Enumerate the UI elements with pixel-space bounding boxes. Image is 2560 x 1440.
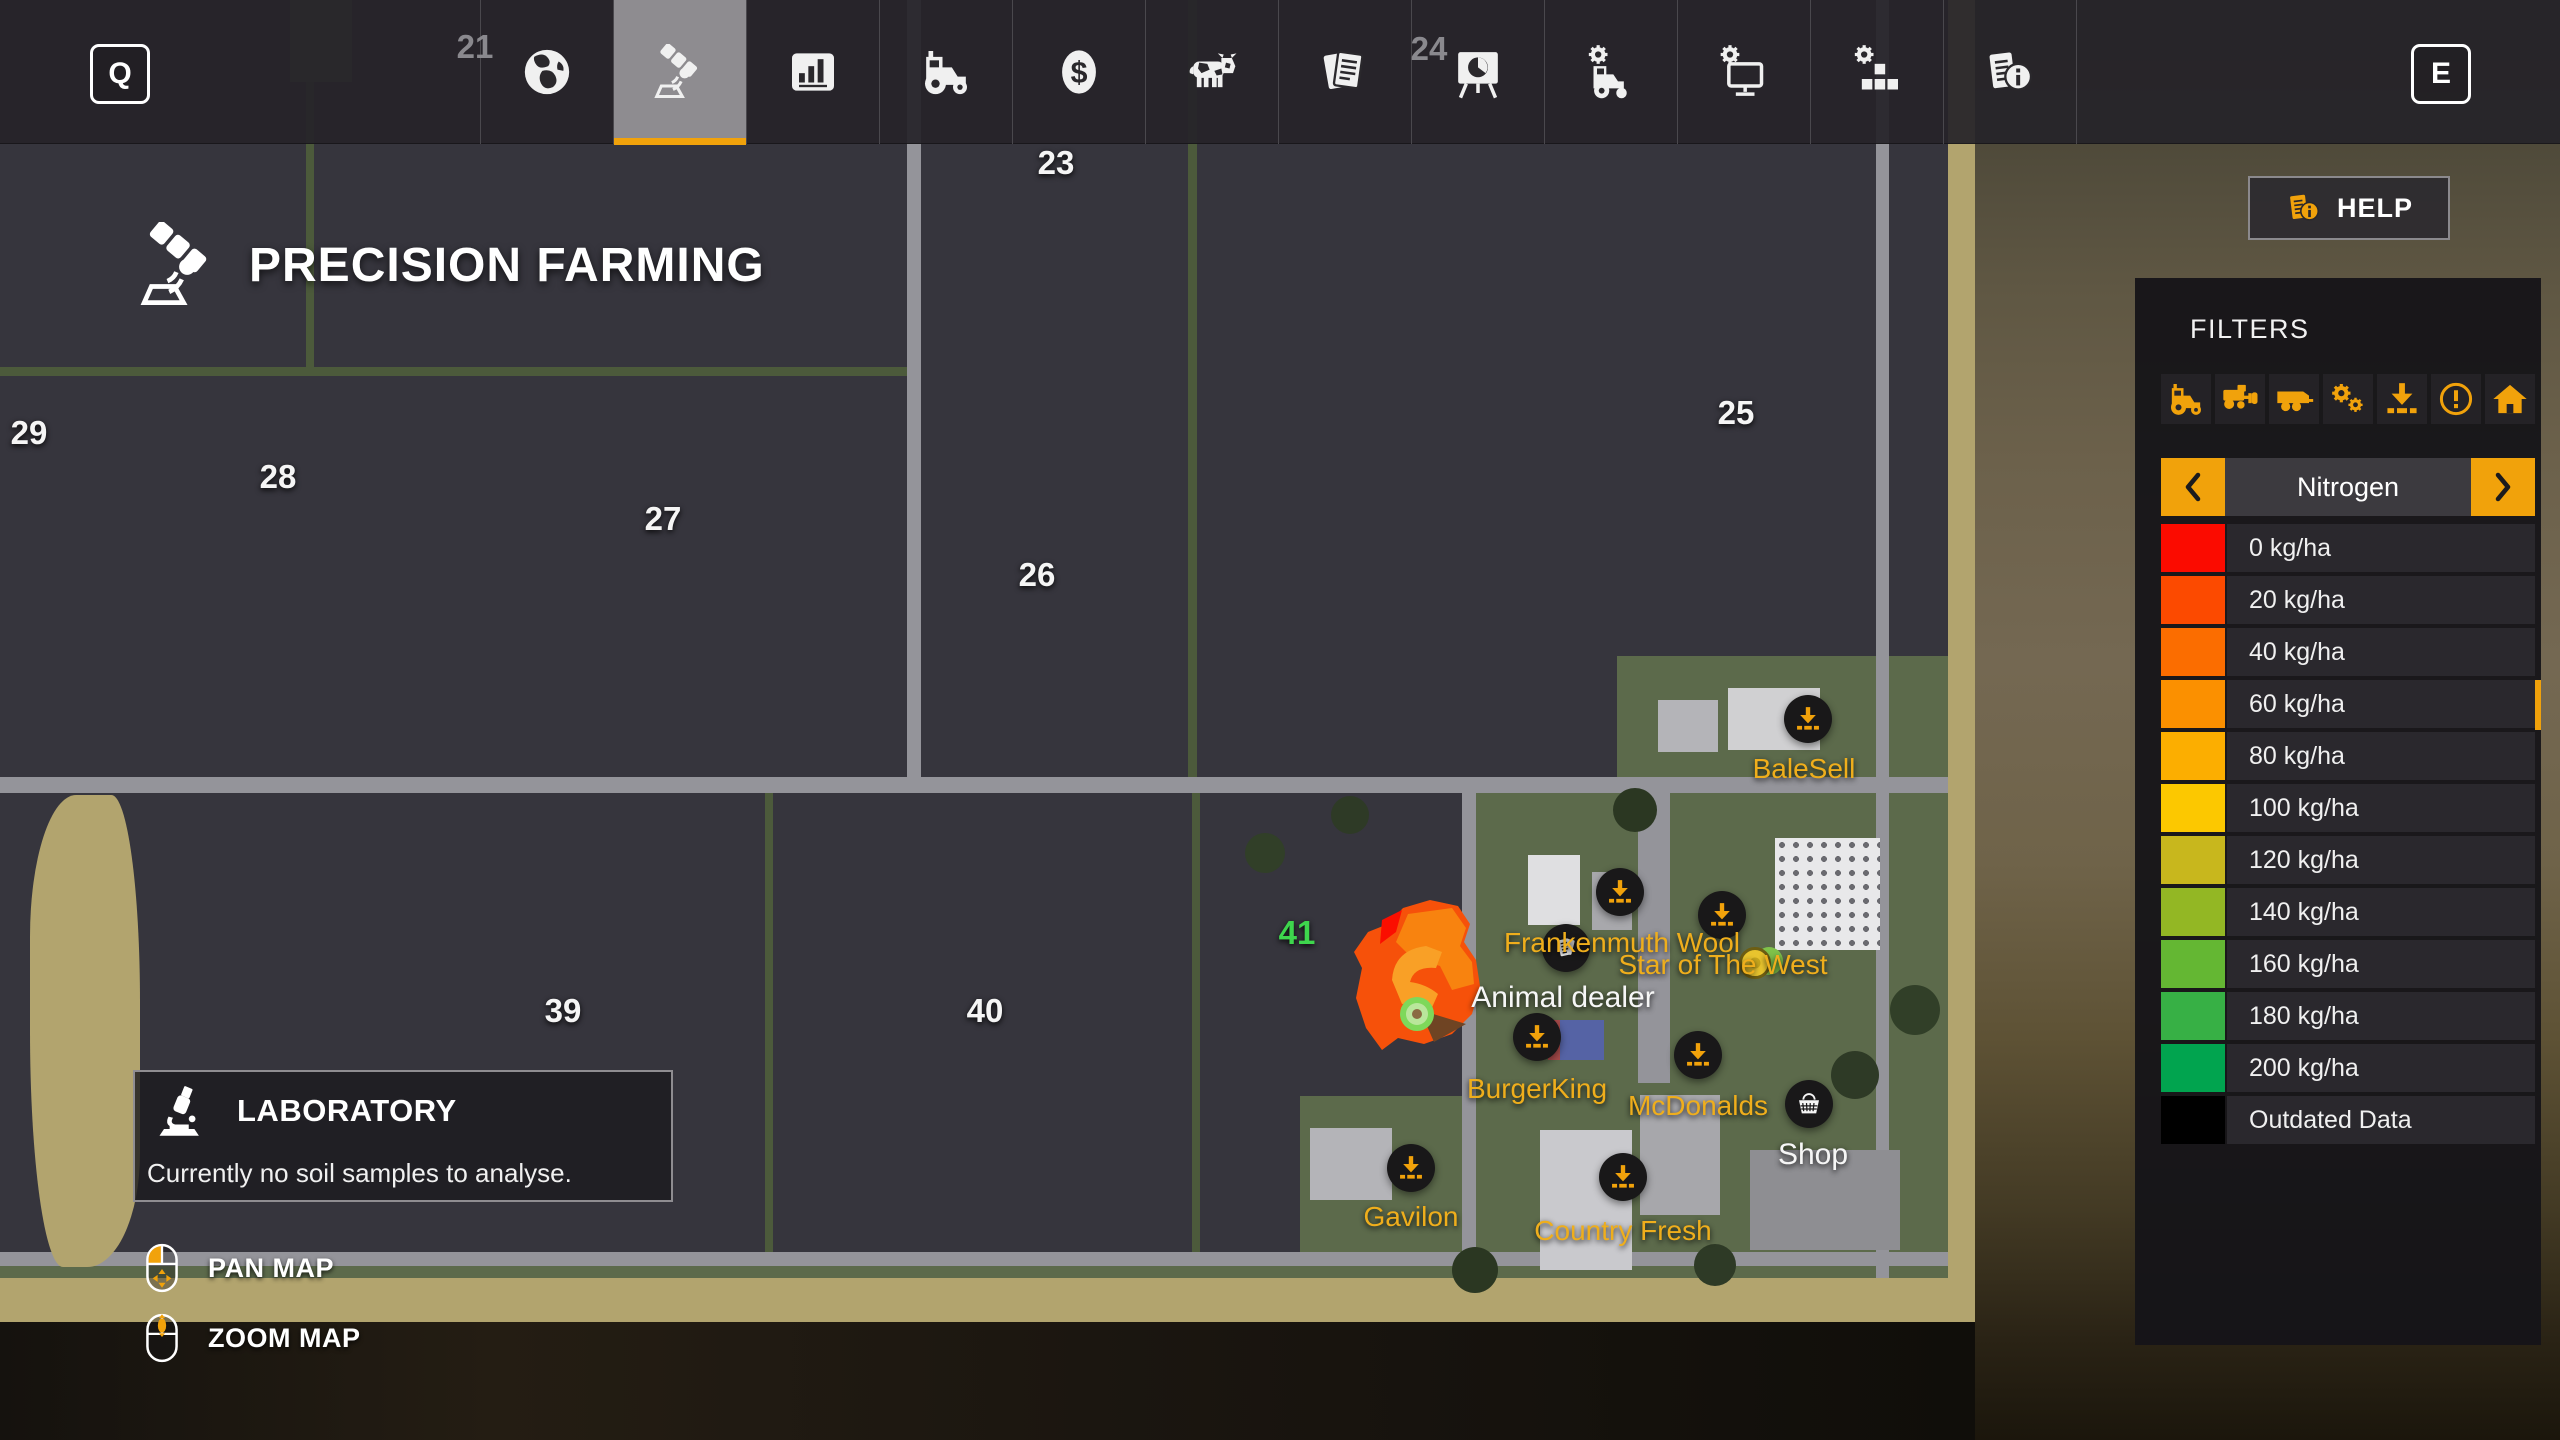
poi-download-icon-mcdonalds[interactable] bbox=[1674, 1031, 1722, 1079]
legend-swatch bbox=[2161, 784, 2225, 832]
legend-label-bg: 80 kg/ha bbox=[2227, 732, 2535, 780]
filter-tractor-icon[interactable] bbox=[2161, 374, 2211, 424]
laboratory-panel: LABORATORY Currently no soil samples to … bbox=[133, 1070, 673, 1202]
field-number-41: 41 bbox=[1279, 914, 1316, 952]
legend-row: 120 kg/ha bbox=[2161, 836, 2535, 888]
tab-map[interactable] bbox=[480, 0, 613, 144]
field-number-27: 27 bbox=[645, 500, 682, 538]
poi-label: BurgerKing bbox=[1467, 1073, 1607, 1105]
legend-swatch bbox=[2161, 576, 2225, 624]
selector-prev-button[interactable] bbox=[2161, 458, 2225, 516]
legend-row: Outdated Data bbox=[2161, 1096, 2535, 1148]
legend-row: 20 kg/ha bbox=[2161, 576, 2535, 628]
filters-title: FILTERS bbox=[2190, 314, 2310, 345]
documents-icon bbox=[1317, 44, 1373, 100]
tab-prices[interactable] bbox=[1411, 0, 1544, 144]
poi-label: Star of The West bbox=[1618, 949, 1827, 981]
legend-label: 180 kg/ha bbox=[2249, 1002, 2359, 1031]
selector-next-button[interactable] bbox=[2471, 458, 2535, 516]
poi-label: BaleSell bbox=[1753, 753, 1856, 785]
key-button-q[interactable]: Q bbox=[90, 44, 150, 104]
svg-text:$: $ bbox=[1071, 57, 1088, 90]
filter-type-selector: Nitrogen bbox=[2161, 458, 2535, 516]
field-number-23: 23 bbox=[1038, 144, 1075, 182]
legend-swatch bbox=[2161, 680, 2225, 728]
blocks-gear-icon bbox=[1849, 44, 1905, 100]
map-control-zoom-map: ZOOM MAP bbox=[144, 1312, 361, 1364]
info-doc-icon bbox=[2285, 189, 2323, 227]
mouse-zoom-icon bbox=[144, 1312, 180, 1364]
poi-label: Country Fresh bbox=[1534, 1215, 1711, 1247]
filter-combine-icon[interactable] bbox=[2215, 374, 2265, 424]
globe-icon bbox=[519, 44, 575, 100]
map-field-hedge bbox=[765, 793, 773, 1263]
legend-label-bg: 100 kg/ha bbox=[2227, 784, 2535, 832]
tab-statistics[interactable] bbox=[746, 0, 879, 144]
tab-vehicles[interactable] bbox=[879, 0, 1012, 144]
legend-label-bg: 200 kg/ha bbox=[2227, 1044, 2535, 1092]
map-control-label: ZOOM MAP bbox=[208, 1323, 361, 1354]
laboratory-title: LABORATORY bbox=[237, 1093, 457, 1129]
mouse-pan-icon bbox=[144, 1242, 180, 1294]
poi-download-icon-balesell[interactable] bbox=[1784, 695, 1832, 743]
satellite-icon bbox=[137, 222, 223, 308]
legend-label-bg: 0 kg/ha bbox=[2227, 524, 2535, 572]
poi-label: Shop bbox=[1778, 1138, 1848, 1172]
legend-row: 100 kg/ha bbox=[2161, 784, 2535, 836]
legend-row: 160 kg/ha bbox=[2161, 940, 2535, 992]
legend-swatch bbox=[2161, 836, 2225, 884]
legend-row: 180 kg/ha bbox=[2161, 992, 2535, 1044]
map-field-hedge bbox=[1192, 793, 1200, 1263]
legend-label: 200 kg/ha bbox=[2249, 1054, 2359, 1083]
poi-download-icon[interactable] bbox=[1596, 868, 1644, 916]
map-field-hedge bbox=[0, 367, 911, 376]
tab-finances[interactable]: $ bbox=[1012, 0, 1145, 144]
legend-label: 100 kg/ha bbox=[2249, 794, 2359, 823]
nitrogen-legend: 0 kg/ha20 kg/ha40 kg/ha60 kg/ha80 kg/ha1… bbox=[2161, 524, 2535, 1148]
tab-game-settings[interactable] bbox=[1677, 0, 1810, 144]
map-wetland bbox=[30, 795, 140, 1267]
tab-general-settings[interactable] bbox=[1810, 0, 1943, 144]
filter-gears-icon[interactable] bbox=[2323, 374, 2373, 424]
top-bar: Q $ E bbox=[0, 0, 2560, 144]
dollar-icon: $ bbox=[1051, 44, 1107, 100]
tractor-icon bbox=[918, 44, 974, 100]
cow-icon bbox=[1184, 44, 1240, 100]
legend-swatch bbox=[2161, 1044, 2225, 1092]
selector-value: Nitrogen bbox=[2225, 458, 2471, 516]
info-doc-icon bbox=[1982, 44, 2038, 100]
legend-label: 0 kg/ha bbox=[2249, 534, 2331, 563]
filter-house-icon[interactable] bbox=[2485, 374, 2535, 424]
legend-row: 200 kg/ha bbox=[2161, 1044, 2535, 1096]
filter-download-icon[interactable] bbox=[2377, 374, 2427, 424]
bar-chart-icon bbox=[785, 44, 841, 100]
legend-label: 120 kg/ha bbox=[2249, 846, 2359, 875]
laboratory-message: Currently no soil samples to analyse. bbox=[147, 1158, 572, 1189]
legend-label: 60 kg/ha bbox=[2249, 690, 2345, 719]
legend-swatch bbox=[2161, 732, 2225, 780]
tab-help[interactable] bbox=[1943, 0, 2076, 144]
microscope-icon bbox=[155, 1084, 209, 1138]
legend-label-bg: 120 kg/ha bbox=[2227, 836, 2535, 884]
poi-download-icon-gavilon[interactable] bbox=[1387, 1144, 1435, 1192]
legend-label: 40 kg/ha bbox=[2249, 638, 2345, 667]
key-button-e[interactable]: E bbox=[2411, 44, 2471, 104]
legend-row: 0 kg/ha bbox=[2161, 524, 2535, 576]
poi-download-icon-burgerking[interactable] bbox=[1513, 1013, 1561, 1061]
page-title: PRECISION FARMING bbox=[137, 222, 765, 308]
map-building bbox=[1310, 1128, 1392, 1200]
field-number-39: 39 bbox=[545, 992, 582, 1030]
scrollbar-thumb[interactable] bbox=[2535, 680, 2541, 730]
legend-label-bg: 40 kg/ha bbox=[2227, 628, 2535, 676]
map-road bbox=[0, 777, 1950, 793]
legend-label-bg: 180 kg/ha bbox=[2227, 992, 2535, 1040]
page-title-label: PRECISION FARMING bbox=[249, 238, 765, 293]
menu-tabs: $ bbox=[480, 0, 2077, 144]
filter-icon-row bbox=[2161, 374, 2535, 424]
legend-swatch bbox=[2161, 1096, 2225, 1144]
legend-label: 160 kg/ha bbox=[2249, 950, 2359, 979]
legend-label-bg: 20 kg/ha bbox=[2227, 576, 2535, 624]
legend-row: 40 kg/ha bbox=[2161, 628, 2535, 680]
legend-row: 80 kg/ha bbox=[2161, 732, 2535, 784]
help-button-label: HELP bbox=[2337, 193, 2413, 224]
tractor-gear-icon bbox=[1583, 44, 1639, 100]
easel-chart-icon bbox=[1450, 44, 1506, 100]
legend-label: Outdated Data bbox=[2249, 1106, 2412, 1135]
field-number-25: 25 bbox=[1718, 394, 1755, 432]
chevron-right-icon bbox=[2491, 471, 2515, 503]
poi-label: McDonalds bbox=[1628, 1090, 1768, 1122]
poi-label: Animal dealer bbox=[1471, 981, 1654, 1015]
legend-swatch bbox=[2161, 940, 2225, 988]
filters-panel: FILTERS Nitrogen 0 kg/ha20 kg/ha40 kg/ha… bbox=[2135, 278, 2541, 1345]
map-control-label: PAN MAP bbox=[208, 1253, 334, 1284]
legend-label: 20 kg/ha bbox=[2249, 586, 2345, 615]
map-building bbox=[1658, 700, 1718, 752]
poi-download-icon-country-fresh[interactable] bbox=[1599, 1153, 1647, 1201]
legend-label-bg: Outdated Data bbox=[2227, 1096, 2535, 1144]
field-number-40: 40 bbox=[967, 992, 1004, 1030]
legend-swatch bbox=[2161, 628, 2225, 676]
legend-row: 60 kg/ha bbox=[2161, 680, 2535, 732]
map-control-pan-map: PAN MAP bbox=[144, 1242, 334, 1294]
legend-label-bg: 160 kg/ha bbox=[2227, 940, 2535, 988]
legend-label: 80 kg/ha bbox=[2249, 742, 2345, 771]
tab-animals[interactable] bbox=[1145, 0, 1278, 144]
poi-basket-icon-shop[interactable] bbox=[1785, 1080, 1833, 1128]
chevron-left-icon bbox=[2181, 471, 2205, 503]
satellite-icon bbox=[652, 44, 708, 100]
legend-row: 140 kg/ha bbox=[2161, 888, 2535, 940]
poi-label: Gavilon bbox=[1364, 1201, 1459, 1233]
legend-swatch bbox=[2161, 888, 2225, 936]
field-number-26: 26 bbox=[1019, 556, 1056, 594]
tab-precision-farming[interactable] bbox=[613, 0, 746, 144]
tab-vehicle-settings[interactable] bbox=[1544, 0, 1677, 144]
map-sand-edge bbox=[1948, 0, 1975, 1290]
tab-contracts[interactable] bbox=[1278, 0, 1411, 144]
filter-trailer-icon[interactable] bbox=[2269, 374, 2319, 424]
map-building bbox=[1775, 838, 1880, 950]
field-number-29: 29 bbox=[11, 414, 48, 452]
legend-swatch bbox=[2161, 524, 2225, 572]
legend-swatch bbox=[2161, 992, 2225, 1040]
filter-warning-icon[interactable] bbox=[2431, 374, 2481, 424]
field-number-28: 28 bbox=[260, 458, 297, 496]
monitor-gear-icon bbox=[1716, 44, 1772, 100]
legend-label: 140 kg/ha bbox=[2249, 898, 2359, 927]
screen: 232526272829394041 BaleSellFrankenmuth W… bbox=[0, 0, 2560, 1440]
help-button[interactable]: HELP bbox=[2248, 176, 2450, 240]
map-building bbox=[1528, 855, 1580, 925]
legend-label-bg: 140 kg/ha bbox=[2227, 888, 2535, 936]
legend-label-bg: 60 kg/ha bbox=[2227, 680, 2535, 728]
